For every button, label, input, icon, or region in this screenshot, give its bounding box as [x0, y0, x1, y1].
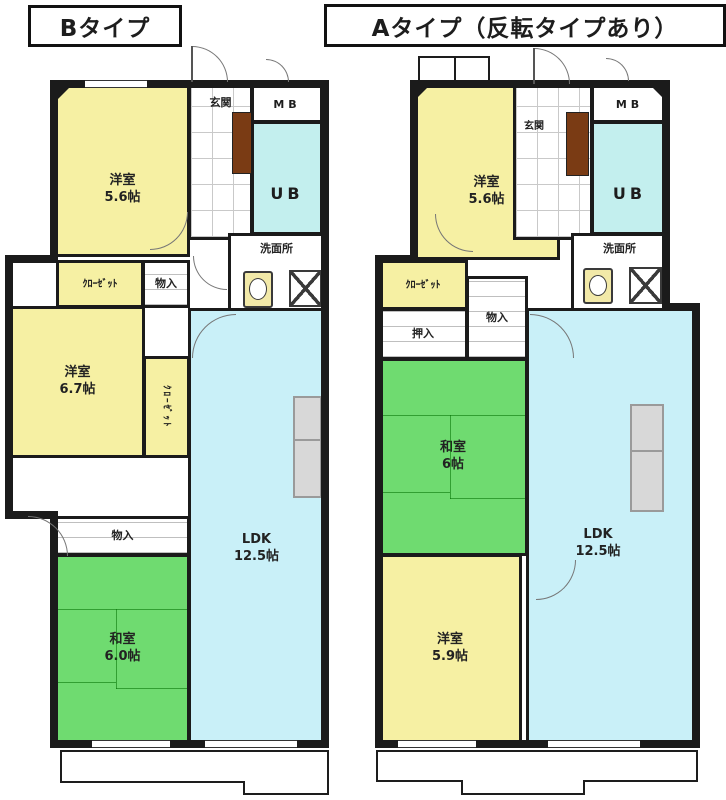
- a-ub-label: UB: [613, 154, 646, 203]
- a-washbasin-icon: [583, 268, 613, 304]
- b-ldk-label: LDK 12.5帖: [234, 486, 279, 566]
- b-storage1-label: 物入: [155, 277, 177, 291]
- a-oshiire: 押入: [378, 308, 468, 360]
- plan-b-title: Bタイプ: [28, 5, 182, 47]
- b-closet1-label: ｸﾛｰｾﾞｯﾄ: [83, 278, 118, 291]
- b-washitsu-label: 和室 6.0帖: [104, 632, 140, 666]
- b-bedroom1-corner: [57, 87, 70, 100]
- b-mb-label: MB: [273, 98, 300, 111]
- b-window-bottom-right: [205, 740, 297, 748]
- b-bedroom2: 洋室 6.7帖: [10, 306, 145, 458]
- b-storage2: 物入: [55, 516, 190, 556]
- a-window-bottom-left: [398, 740, 476, 748]
- a-closet1: ｸﾛｰｾﾞｯﾄ: [378, 260, 468, 310]
- b-balcony-step: [243, 781, 329, 795]
- a-washitsu-label: 和室 6帖: [440, 440, 466, 474]
- a-storage1-label: 物入: [486, 311, 508, 325]
- plan-a-title-text: Aタイプ（反転タイプあり）: [372, 9, 679, 43]
- a-washitsu: 和室 6帖: [378, 358, 528, 556]
- a-window-bottom-right: [548, 740, 640, 748]
- b-balcony: [60, 750, 329, 783]
- a-wall-right-lower: [692, 303, 700, 748]
- plan-b-title-text: Bタイプ: [60, 9, 151, 43]
- b-entry-door-arc: [192, 46, 228, 82]
- a-mb-label: MB: [616, 98, 643, 111]
- b-shoe-cabinet: [232, 112, 253, 174]
- b-washing-machine-icon: [289, 270, 322, 307]
- b-washitsu: 和室 6.0帖: [55, 554, 190, 744]
- a-wall-right-upper: [662, 80, 670, 310]
- floorplan-image: { "plan_b": { "title": "Bタイプ", "rooms": …: [0, 0, 726, 800]
- a-storage1: 物入: [466, 276, 528, 360]
- b-hall-door-arc: [193, 256, 227, 290]
- b-wall-left-mid: [5, 255, 13, 519]
- b-entry-door-leaf: [191, 46, 193, 82]
- a-shoe-cabinet: [566, 112, 589, 176]
- a-kitchen-counter: [630, 404, 664, 512]
- a-mb-door-arc: [606, 58, 629, 81]
- a-balcony-step: [461, 780, 585, 795]
- b-window-top: [85, 80, 147, 88]
- b-storage2-label: 物入: [112, 529, 134, 543]
- b-washroom-label: 洗面所: [260, 236, 293, 256]
- b-wall-right: [321, 80, 329, 748]
- b-closet2: ｸﾛｰｾﾞｯﾄ: [143, 356, 190, 458]
- b-mb-door-arc: [266, 59, 289, 82]
- b-washbasin-icon: [243, 271, 273, 308]
- a-wall-left-upper: [410, 80, 418, 263]
- b-bedroom1-label: 洋室 5.6帖: [104, 135, 140, 207]
- b-entrance-label: 玄関: [210, 88, 232, 110]
- a-entry-door-arc: [534, 48, 570, 84]
- a-unit-bath: UB: [591, 121, 668, 235]
- a-bedroom1-label: 洋室 5.6帖: [468, 137, 504, 209]
- b-bedroom2-label: 洋室 6.7帖: [59, 365, 95, 399]
- a-meter-box: MB: [591, 85, 668, 123]
- a-closet1-label: ｸﾛｰｾﾞｯﾄ: [406, 279, 441, 292]
- a-washroom-label: 洗面所: [603, 236, 636, 256]
- a-oshiire-label: 押入: [412, 327, 434, 341]
- b-window-bottom-left: [92, 740, 170, 748]
- a-bedroom2-label: 洋室 5.9帖: [432, 632, 468, 666]
- b-storage1: 物入: [142, 260, 190, 308]
- b-kitchen-counter: [293, 396, 322, 498]
- b-ub-label: UB: [270, 154, 303, 203]
- b-unit-bath: UB: [251, 121, 323, 235]
- a-ldk: LDK 12.5帖: [526, 308, 700, 744]
- a-wall-left: [375, 255, 383, 748]
- a-washing-machine-icon: [629, 267, 662, 304]
- a-entry-door-leaf: [533, 48, 535, 84]
- a-balcony: [376, 750, 698, 782]
- b-wall-left-upper: [50, 80, 58, 263]
- b-ldk: LDK 12.5帖: [188, 308, 325, 744]
- a-entrance-label: 玄関: [516, 88, 544, 133]
- b-meter-box: MB: [251, 85, 323, 123]
- plan-a-title: Aタイプ（反転タイプあり）: [324, 4, 726, 47]
- b-closet1: ｸﾛｰｾﾞｯﾄ: [56, 260, 144, 308]
- b-closet2-label: ｸﾛｰｾﾞｯﾄ: [160, 385, 173, 429]
- a-bedroom2: 洋室 5.9帖: [378, 554, 522, 744]
